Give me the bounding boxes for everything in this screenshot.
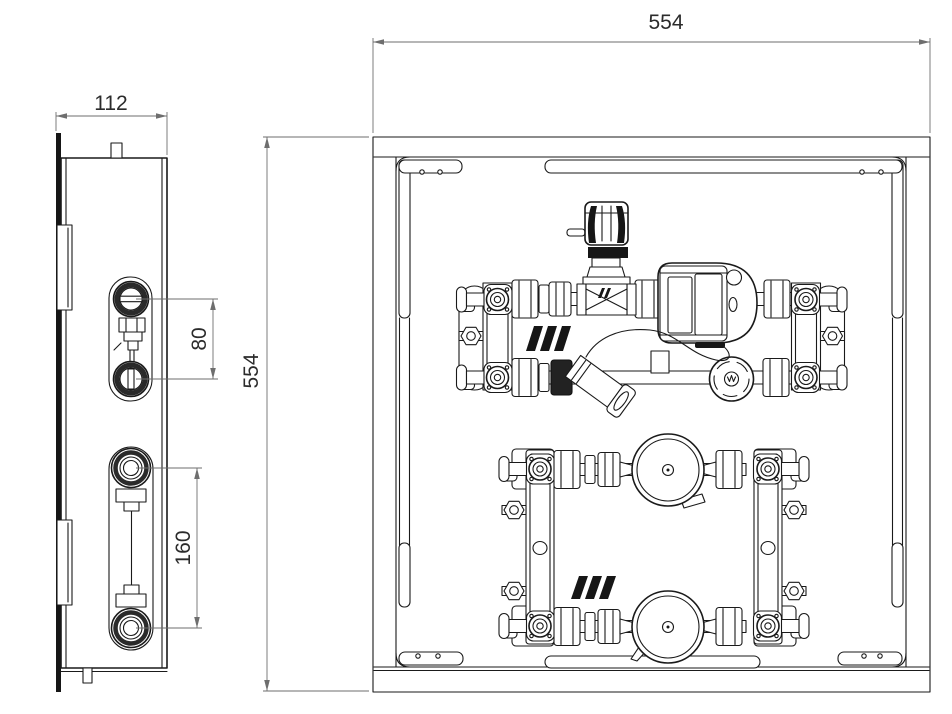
circulation-pump-upper [632,434,704,506]
circulation-pump-lower [632,591,704,663]
dimension-front-width: 554 [373,11,930,133]
balancing-valve-knob [710,357,754,401]
actuator-pin [567,229,585,236]
dim-side-depth-value: 112 [94,92,127,115]
dim-lower-ports-value: 160 [172,530,195,565]
manifold-cabinet-drawing: 554 112 554 80 160 [0,0,952,714]
side-upper-valve-profile [109,277,152,401]
valve-bracket-left [457,283,513,393]
wall-bracket-upper [57,225,72,310]
dim-front-height-value: 554 [240,353,263,388]
pump-energy-meter [658,263,757,348]
side-view [56,133,167,692]
top-mounting-tab [111,143,122,158]
valve-bracket-right [792,283,848,393]
wall-bracket-lower [57,520,72,605]
dim-front-width-value: 554 [648,11,683,34]
dim-upper-ports-value: 80 [188,327,211,350]
meter-display [695,274,722,335]
front-view [373,137,930,692]
side-lower-valve-profile [109,447,153,650]
meter-button [727,270,742,285]
bottom-mounting-tab [83,668,92,683]
technical-drawing-page: 554 112 554 80 160 [0,0,952,714]
actuator-seal-ring [588,247,628,258]
dimension-front-height: 554 [240,137,369,691]
